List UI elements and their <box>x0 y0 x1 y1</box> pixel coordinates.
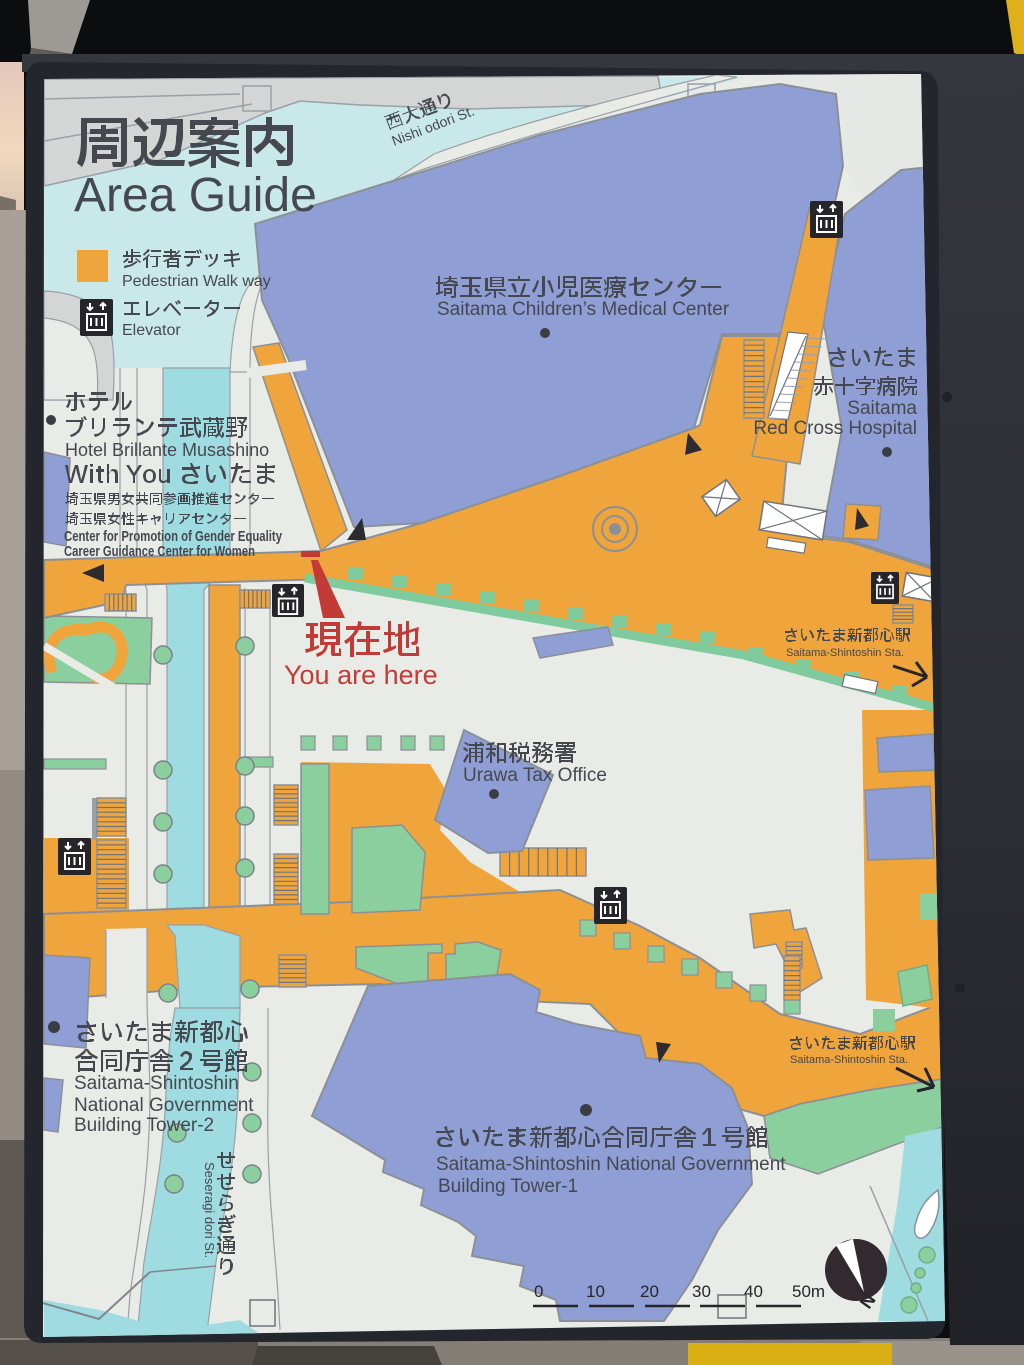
svg-text:10: 10 <box>586 1282 605 1301</box>
svg-text:National Government: National Government <box>74 1095 254 1116</box>
svg-text:50m: 50m <box>792 1282 825 1301</box>
svg-text:Career Guidance Center for Wom: Career Guidance Center for Women <box>64 543 255 560</box>
svg-text:Saitama-Shintoshin Sta.: Saitama-Shintoshin Sta. <box>786 647 904 659</box>
svg-text:20: 20 <box>640 1282 659 1301</box>
svg-text:Building Tower-2: Building Tower-2 <box>74 1115 214 1136</box>
svg-text:Building Tower-1: Building Tower-1 <box>438 1176 578 1197</box>
svg-text:Saitama-Shintoshin Sta.: Saitama-Shintoshin Sta. <box>790 1054 908 1066</box>
svg-text:30: 30 <box>692 1282 711 1301</box>
svg-text:Hotel Brillante Musashino: Hotel Brillante Musashino <box>65 440 269 460</box>
svg-text:Pedestrian Walk way: Pedestrian Walk way <box>122 273 271 290</box>
svg-text:Saitama-Shintoshin: Saitama-Shintoshin <box>74 1073 239 1094</box>
svg-text:Seseragi dori St.: Seseragi dori St. <box>202 1162 217 1258</box>
svg-text:Saitama Children’s Medical Cen: Saitama Children’s Medical Center <box>437 299 730 320</box>
svg-text:Elevator: Elevator <box>122 322 181 339</box>
svg-text:Red Cross Hospital: Red Cross Hospital <box>753 418 917 439</box>
svg-text:Urawa Tax Office: Urawa Tax Office <box>463 765 607 786</box>
svg-text:Saitama: Saitama <box>847 398 917 419</box>
svg-text:Area Guide: Area Guide <box>74 169 317 222</box>
svg-text:You are here: You are here <box>284 660 438 690</box>
svg-text:0: 0 <box>534 1282 543 1301</box>
svg-text:Saitama-Shintoshin National Go: Saitama-Shintoshin National Government <box>436 1154 786 1175</box>
svg-text:40: 40 <box>744 1282 763 1301</box>
